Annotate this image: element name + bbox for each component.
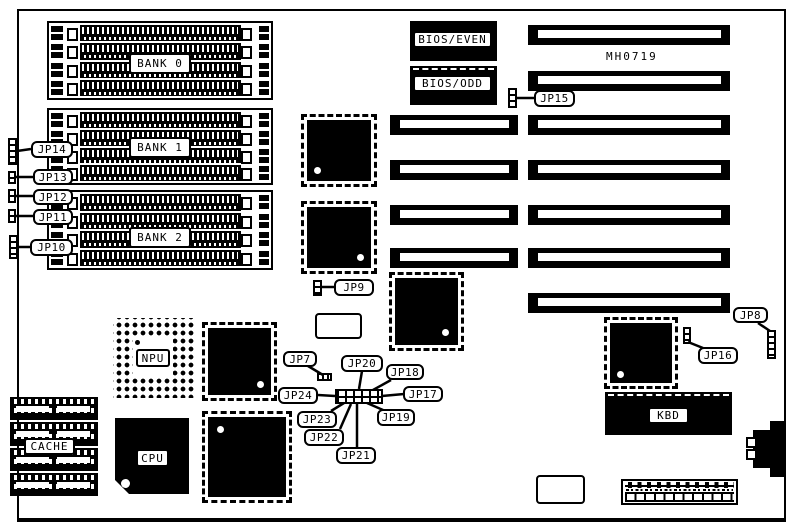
jumper-block-jp12 — [8, 189, 16, 203]
qfp-chip — [604, 317, 678, 389]
pin1-dot — [357, 254, 364, 261]
jumper-block-jp15 — [508, 88, 517, 108]
jumper-block-jp8 — [767, 330, 776, 359]
qfp-chip — [389, 272, 464, 351]
bios-odd-label: BIOS/ODD — [413, 75, 492, 92]
keyboard-controller-chip: KBD — [605, 392, 732, 435]
jumper-block-jp13 — [8, 171, 16, 184]
cache-dip-row — [10, 397, 98, 420]
jumper-callout-jp24: JP24 — [278, 387, 318, 404]
jumper-callout-jp11: JP11 — [33, 209, 73, 225]
motherboard-diagram: BANK 0 BANK 1 BANK 2 JP14 JP13 JP12 JP11… — [0, 0, 791, 527]
pin1-dot — [135, 340, 140, 345]
jumper-block-jp14 — [8, 138, 17, 165]
simm-slot-row — [51, 25, 269, 41]
cpu-label: CPU — [136, 449, 169, 467]
jumper-callout-jp7: JP7 — [283, 351, 317, 367]
jumper-callout-jp16: JP16 — [698, 347, 738, 364]
isa-slot-segment — [390, 248, 518, 268]
jumper-callout-jp14: JP14 — [31, 141, 73, 158]
jumper-callout-jp17: JP17 — [403, 386, 443, 402]
qfp-chip — [202, 411, 292, 503]
simm-socket — [80, 25, 241, 41]
simm-slot-row — [51, 165, 269, 181]
simm-socket — [80, 80, 241, 96]
pin1-dot — [257, 381, 264, 388]
jumper-block-jp10 — [9, 235, 18, 259]
pin1-dot — [217, 426, 224, 433]
isa-slot-segment — [390, 205, 518, 225]
memory-bank-0: BANK 0 — [47, 21, 273, 100]
simm-socket — [80, 165, 241, 181]
npu-socket: NPU — [113, 318, 194, 398]
qfp-chip — [202, 322, 277, 401]
simm-socket — [80, 194, 241, 211]
pin1-dot — [617, 371, 624, 378]
memory-bank-2: BANK 2 — [47, 190, 273, 270]
jumper-block-jp7 — [317, 373, 332, 381]
jumper-callout-jp9: JP9 — [334, 279, 374, 296]
bank1-label: BANK 1 — [129, 137, 191, 158]
npu-label: NPU — [136, 349, 170, 367]
jumper-callout-jp21: JP21 — [336, 447, 376, 464]
cache-dip-row — [10, 473, 98, 496]
jumper-block-jp11 — [8, 209, 16, 223]
isa-slot-segment — [528, 71, 730, 91]
isa-slot-segment — [390, 160, 518, 180]
jumper-header-block — [335, 389, 383, 404]
power-pins-top — [625, 482, 734, 488]
simm-socket — [80, 112, 241, 128]
jumper-callout-jp8: JP8 — [733, 307, 768, 323]
qfp-chip — [301, 201, 377, 274]
bios-even-label: BIOS/EVEN — [413, 31, 492, 48]
jumper-callout-jp18: JP18 — [386, 364, 424, 380]
isa-slot-segment — [528, 293, 730, 313]
jumper-callout-jp15: JP15 — [534, 90, 575, 107]
jumper-callout-jp19: JP19 — [377, 409, 415, 426]
cache-label: CACHE — [24, 438, 75, 455]
bios-odd-chip: BIOS/ODD — [410, 66, 497, 105]
isa-slot-segment — [528, 205, 730, 225]
power-pins-middle — [626, 489, 733, 491]
pin1-dot — [121, 479, 130, 488]
pin1-dot — [442, 329, 449, 336]
isa-slot-segment — [528, 248, 730, 268]
jumper-callout-jp13: JP13 — [33, 169, 73, 185]
bank0-label: BANK 0 — [129, 53, 191, 74]
isa-slot-segment — [528, 160, 730, 180]
npu-center-plate: NPU — [133, 338, 173, 376]
isa-slot-segment — [390, 115, 518, 135]
simm-slot-row — [51, 250, 269, 267]
jumper-callout-jp22: JP22 — [304, 429, 344, 446]
pin1-dot — [314, 167, 321, 174]
crystal-oscillator — [315, 313, 362, 339]
jumper-callout-jp20: JP20 — [341, 355, 383, 372]
connector-pin — [746, 437, 757, 448]
qfp-chip — [301, 114, 377, 187]
isa-slot-segment — [528, 115, 730, 135]
isa-slot-segment — [528, 25, 730, 45]
jumper-callout-jp12: JP12 — [33, 189, 73, 205]
connector-pin — [746, 449, 757, 460]
simm-slot-row — [51, 194, 269, 211]
crystal-oscillator — [536, 475, 585, 504]
jumper-callout-jp10: JP10 — [30, 239, 73, 256]
power-pins-bottom — [625, 492, 734, 502]
board-model-label: MH0719 — [606, 50, 658, 63]
jumper-block-jp9 — [313, 280, 322, 296]
jumper-block-jp16 — [683, 327, 691, 344]
kbd-label: KBD — [648, 407, 689, 424]
simm-slot-row — [51, 112, 269, 128]
simm-socket — [80, 250, 241, 267]
bios-even-chip: BIOS/EVEN — [410, 21, 497, 61]
jumper-callout-jp23: JP23 — [297, 411, 337, 428]
cpu-chip: CPU — [115, 418, 189, 494]
memory-bank-1: BANK 1 — [47, 108, 273, 185]
bank2-label: BANK 2 — [129, 227, 191, 248]
simm-slot-row — [51, 80, 269, 96]
power-connector — [621, 479, 738, 505]
